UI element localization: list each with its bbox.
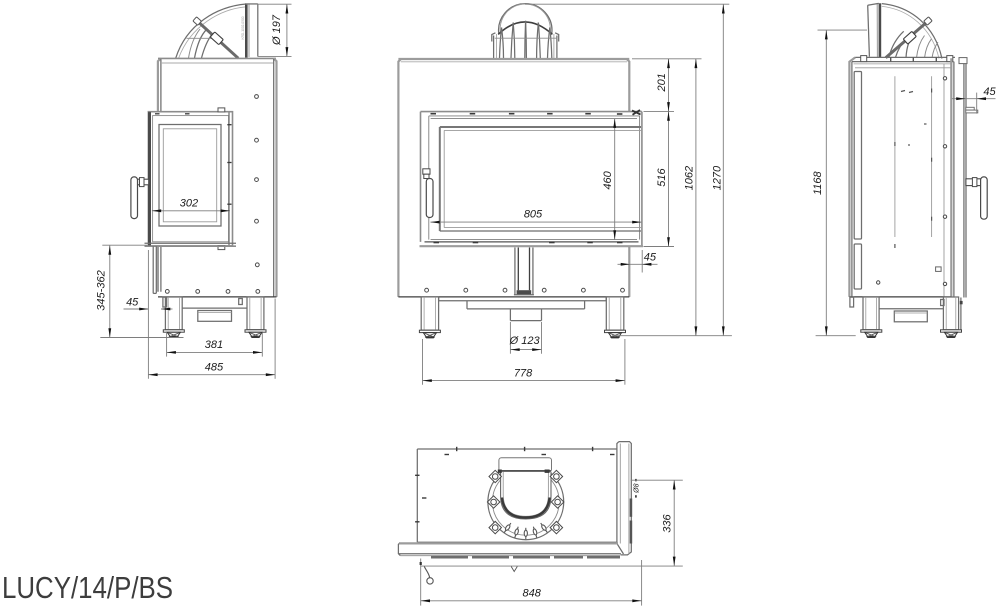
svg-text:302: 302 <box>180 198 198 210</box>
svg-text:848: 848 <box>523 587 542 599</box>
svg-text:778: 778 <box>514 367 533 379</box>
svg-text:516: 516 <box>656 168 668 187</box>
svg-text:201: 201 <box>656 73 668 92</box>
svg-text:345-362: 345-362 <box>96 270 108 310</box>
svg-text:Ø8: Ø8 <box>634 483 641 493</box>
svg-text:336: 336 <box>662 514 674 533</box>
svg-text:LUCY/14/P/BS: LUCY/14/P/BS <box>2 570 173 605</box>
svg-text:Ø 123: Ø 123 <box>509 335 541 347</box>
svg-text:1270: 1270 <box>712 165 724 190</box>
svg-text:Ø 197: Ø 197 <box>271 14 283 46</box>
svg-text:805: 805 <box>524 209 543 221</box>
svg-text:45: 45 <box>644 251 657 263</box>
svg-text:KRD-1002-0500: KRD-1002-0500 <box>241 16 245 39</box>
svg-text:381: 381 <box>205 339 223 351</box>
svg-text:485: 485 <box>205 361 224 373</box>
svg-text:460: 460 <box>602 170 614 189</box>
svg-text:1168: 1168 <box>812 170 824 195</box>
svg-text:45: 45 <box>983 86 996 98</box>
svg-text:45: 45 <box>126 297 139 309</box>
svg-text:1062: 1062 <box>683 166 695 190</box>
